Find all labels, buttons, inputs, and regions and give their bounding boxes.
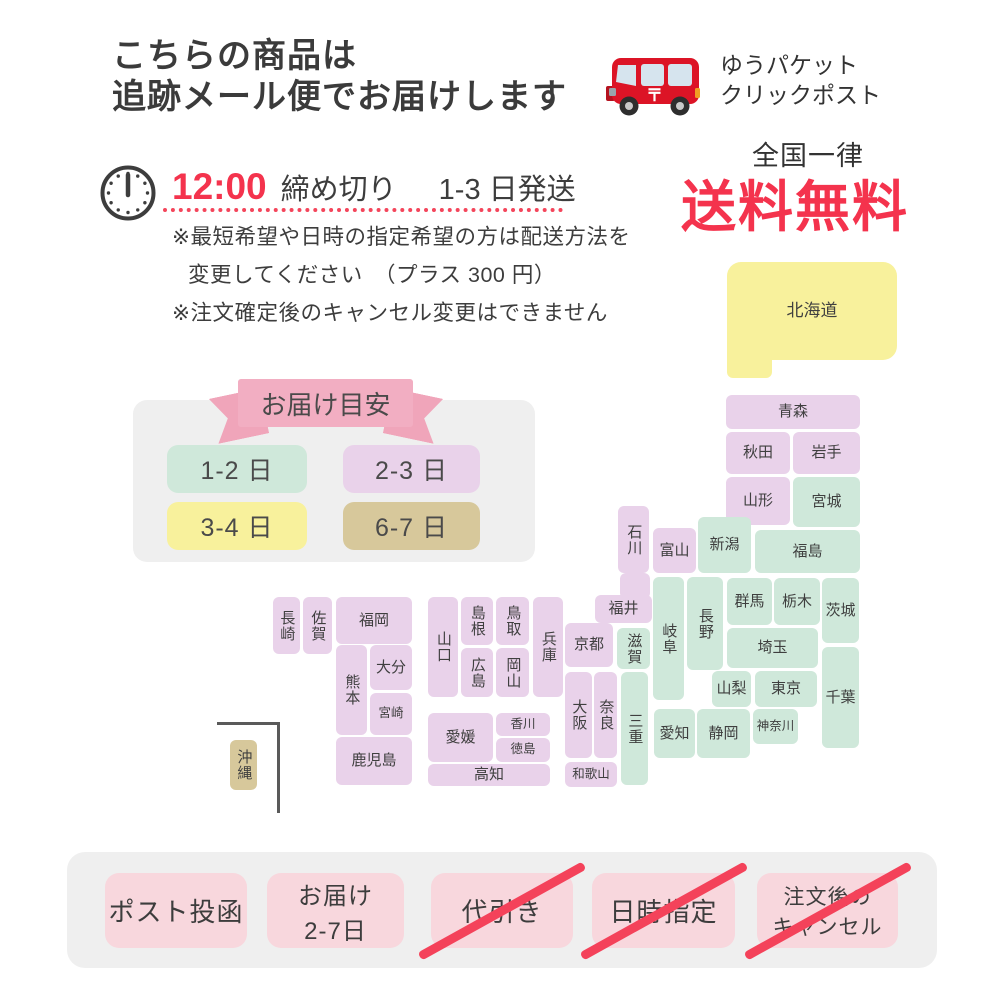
map-block-hiroshima: 広島 — [461, 648, 493, 697]
map-block-fukushima: 福島 — [755, 530, 860, 573]
map-block-kumamoto: 熊本 — [336, 645, 367, 735]
map-block-kagoshima: 鹿児島 — [336, 737, 412, 785]
map-block-toyama: 富山 — [653, 528, 696, 573]
map-block-kyoto: 京都 — [565, 623, 613, 667]
map-block-nagasaki: 長崎 — [273, 597, 300, 654]
map-block-gunma: 群馬 — [727, 578, 772, 625]
badge-datetime-unavailable: 日時指定 — [592, 873, 735, 948]
badge-post-drop: ポスト投函 — [105, 873, 247, 948]
map-block-osaka: 大阪 — [565, 672, 592, 758]
map-block-kanagawa: 神奈川 — [753, 709, 798, 744]
map-block-yamanashi: 山梨 — [712, 671, 751, 707]
map-block-shimane: 島根 — [461, 597, 493, 645]
map-block-miyagi: 宮城 — [793, 477, 860, 527]
okinawa-inset-border — [217, 722, 280, 813]
badge-cod-unavailable: 代引き — [431, 873, 573, 948]
map-block-saga: 佐賀 — [303, 597, 332, 654]
map-block-ehime: 愛媛 — [428, 713, 493, 762]
map-block-mie: 三重 — [621, 672, 648, 785]
strike-line — [418, 861, 587, 960]
map-block-chiba: 千葉 — [822, 647, 859, 748]
map-block-shiga: 滋賀 — [617, 628, 650, 669]
map-block-nagano: 長野 — [687, 577, 723, 670]
strike-line — [743, 861, 912, 960]
map-block-miyazaki: 宮崎 — [370, 693, 412, 735]
map-block-fukuoka: 福岡 — [336, 597, 412, 644]
map-block-saitama: 埼玉 — [727, 628, 818, 668]
legend-title-ribbon: お届け目安 — [238, 379, 413, 427]
map-block-yamaguchi: 山口 — [428, 597, 458, 697]
badge-label: お届け — [298, 876, 373, 911]
map-block-tokushima: 徳島 — [496, 738, 550, 762]
map-block-hyogo: 兵庫 — [533, 597, 563, 697]
map-block-okayama: 岡山 — [496, 648, 529, 697]
map-block-iwate: 岩手 — [793, 432, 860, 474]
badge-label: 2-7日 — [304, 911, 367, 946]
map-block-wakayama: 和歌山 — [565, 762, 617, 787]
map-block-aomori: 青森 — [726, 395, 860, 429]
map-block-akita: 秋田 — [726, 432, 790, 474]
badge-delivery-2-7-days: お届け 2-7日 — [267, 873, 404, 948]
badge-label: ポスト投函 — [108, 892, 243, 929]
map-block-oita: 大分 — [370, 645, 412, 690]
map-block-fukui: 福井 — [595, 595, 652, 623]
badge-cancel-unavailable: 注文後の キャンセル — [757, 873, 898, 948]
map-block-tottori: 鳥取 — [496, 597, 529, 645]
map-block-niigata: 新潟 — [698, 517, 751, 573]
map-block-tokyo: 東京 — [755, 671, 817, 707]
map-block-ishikawa: 石川 — [618, 506, 649, 573]
japan-delivery-map: 北海道青森秋田岩手山形宮城新潟福島石川富山福井岐阜長野群馬栃木茨城埼玉滋賀京都山… — [0, 0, 1000, 1000]
shipping-info-banner: こちらの商品は 追跡メール便でお届けします 〒 ゆうパケット クリックポスト 全… — [0, 0, 1000, 1000]
map-block-tochigi: 栃木 — [774, 578, 820, 625]
map-block-gifu: 岐阜 — [653, 577, 684, 700]
map-block-kochi: 高知 — [428, 764, 550, 786]
map-block-aichi: 愛知 — [654, 709, 695, 758]
map-block-shizuoka: 静岡 — [697, 709, 750, 758]
map-block-ibaraki: 茨城 — [822, 578, 859, 643]
map-block-hokkaido: 北海道 — [727, 262, 897, 360]
strike-line — [579, 861, 748, 960]
map-block-kagawa: 香川 — [496, 713, 550, 736]
map-block-nara: 奈良 — [594, 672, 617, 758]
